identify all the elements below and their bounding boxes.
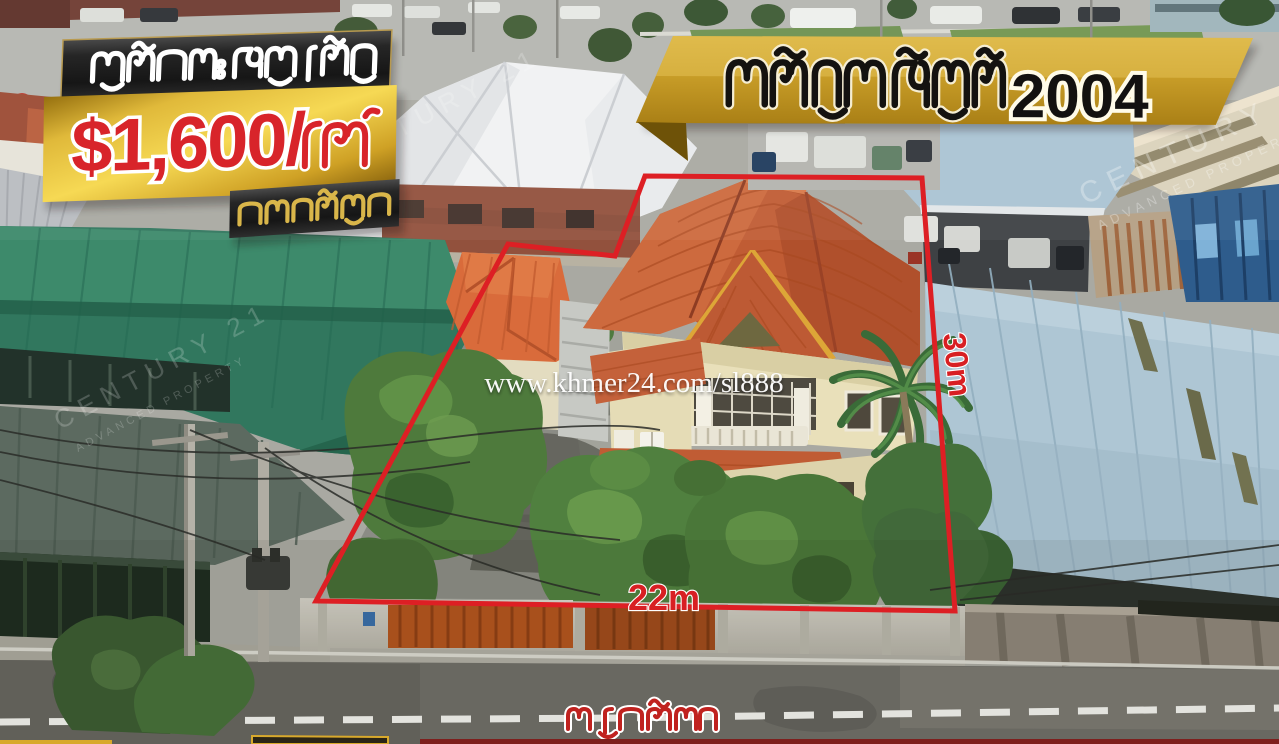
svg-text:2004: 2004 (1011, 62, 1150, 131)
svg-text:www.khmer24.com/sl888: www.khmer24.com/sl888 (484, 367, 783, 399)
svg-text:22m: 22m (628, 577, 700, 618)
svg-text:$1,600/: $1,600/ (71, 97, 306, 188)
svg-text:30m: 30m (936, 331, 978, 398)
